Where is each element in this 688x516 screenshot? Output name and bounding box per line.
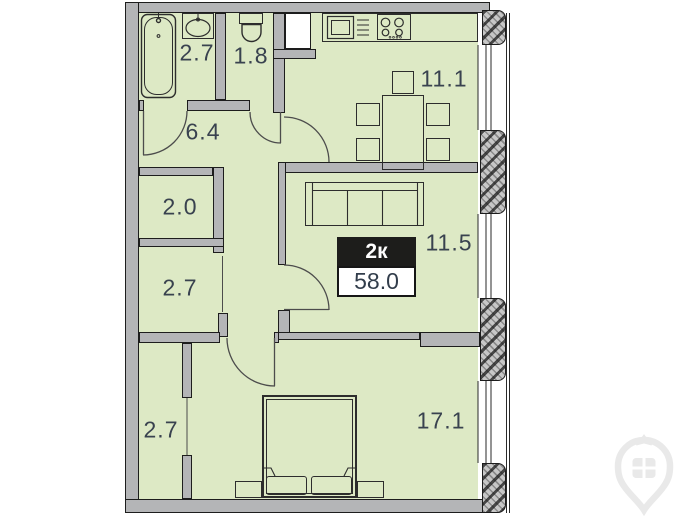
wc-door-arc	[250, 112, 281, 143]
stove-knob	[389, 36, 391, 38]
window-glazing	[478, 45, 491, 130]
burner	[396, 29, 403, 36]
stove-knob	[400, 36, 402, 38]
facade-line	[507, 13, 510, 513]
bathtub-drain	[157, 35, 160, 38]
floor-plan: 2.7 1.8 11.1 6.4 2.0 2.7 11.5 2.7 17.1 2…	[0, 0, 688, 516]
room-label-wc: 1.8	[234, 43, 269, 70]
apartment-type-badge: 2к	[337, 237, 416, 266]
window-glazing	[478, 214, 491, 298]
stove-knob	[396, 36, 398, 38]
room-label-hallway: 6.4	[186, 119, 221, 146]
bathtub-tap-dot	[157, 19, 161, 23]
burner	[395, 18, 404, 27]
burner	[381, 18, 390, 27]
bedroom-door-arc	[227, 338, 275, 386]
room-label-closet: 2.0	[163, 194, 198, 221]
developer-logo-watermark	[618, 434, 670, 510]
kitchen-sink-basin	[332, 21, 350, 35]
living-door-arc	[284, 265, 329, 310]
kitchen-door-arc	[284, 117, 329, 162]
total-area-badge: 58.0	[337, 266, 416, 297]
stove-knob	[393, 36, 395, 38]
sink-bowl	[186, 20, 210, 37]
room-label-bathroom: 2.7	[180, 40, 215, 67]
room-label-bedroom: 17.1	[417, 408, 466, 435]
room-label-storage: 2.7	[163, 275, 198, 302]
room-label-wardrobe: 2.7	[144, 417, 179, 444]
room-label-kitchen: 11.1	[420, 66, 467, 93]
bathtub-icon	[142, 15, 176, 98]
toilet-bowl	[242, 25, 261, 42]
room-label-living: 11.5	[425, 230, 472, 257]
bed-notches	[262, 468, 357, 476]
bathtub-inner	[145, 18, 173, 95]
burner	[382, 29, 389, 36]
drainboard-lines	[357, 20, 369, 35]
bathroom-door-arc	[143, 111, 187, 155]
sofa-cushion-lines	[312, 182, 418, 226]
window-glazing	[478, 381, 491, 463]
